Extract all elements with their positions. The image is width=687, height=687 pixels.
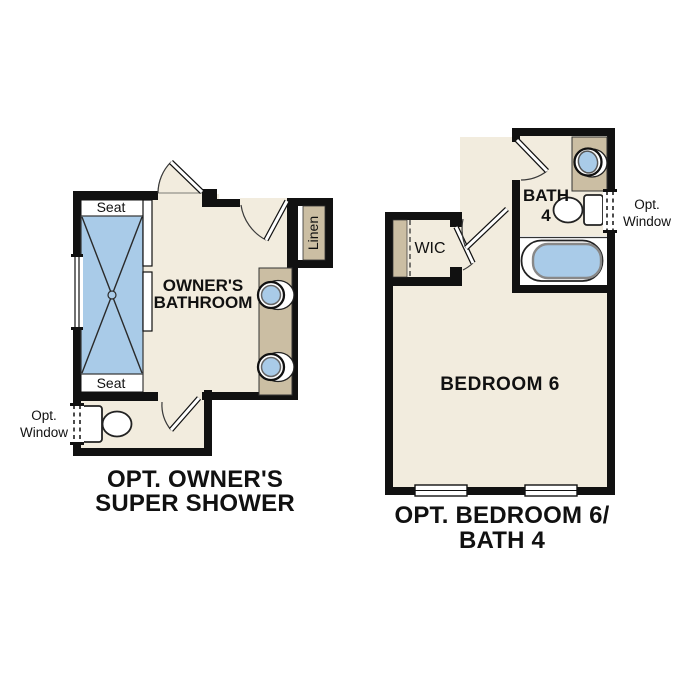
left-plan-title-line2: SUPER SHOWER [95,490,295,517]
sink-icon [258,281,294,310]
left-plan-owners-super-shower: Seat Seat OWNER'S BATHROOM Linen Opt. Wi… [20,162,333,517]
shower-seat-bottom-label: Seat [97,375,126,391]
opt-window-right-label-line1: Opt. [634,197,660,212]
shower-drain-icon [108,291,116,299]
left-plan-title-line1: OPT. OWNER'S [107,466,283,493]
bath4-label-line2: 4 [541,206,551,225]
opt-window-left-label-line1: Opt. [31,408,57,423]
vanity-double-sink [258,268,294,395]
opt-window-left [70,403,84,445]
shower-glass-panel [143,272,152,331]
bedroom-window [525,485,577,496]
bedroom-window [415,485,467,496]
sink-icon [258,353,294,382]
shower-glass-panel [143,200,152,266]
linen-label: Linen [305,216,321,250]
owners-bathroom-label-line2: BATHROOM [154,293,253,312]
bath4-vanity-sink [572,137,607,191]
shower-seat-top-label: Seat [97,199,126,215]
bath4-label-line1: BATH [523,186,569,205]
bedroom6-label: BEDROOM 6 [440,374,560,395]
wic-label: WIC [414,240,445,257]
sink-icon [575,149,608,178]
opt-window-right-label-line2: Window [623,214,671,229]
shower-window [71,254,83,330]
shower-super [71,200,152,392]
floorplan-canvas: Seat Seat OWNER'S BATHROOM Linen Opt. Wi… [0,0,687,687]
right-plan-bedroom6-bath4: BATH 4 WIC BEDROOM 6 Opt. Window OPT. BE… [385,128,671,554]
bathtub-icon [520,236,607,285]
right-plan-title-line1: OPT. BEDROOM 6/ [394,502,609,529]
opt-window-left-label-line2: Window [20,425,68,440]
right-plan-title-line2: BATH 4 [459,527,546,554]
opt-window-right [603,189,617,233]
